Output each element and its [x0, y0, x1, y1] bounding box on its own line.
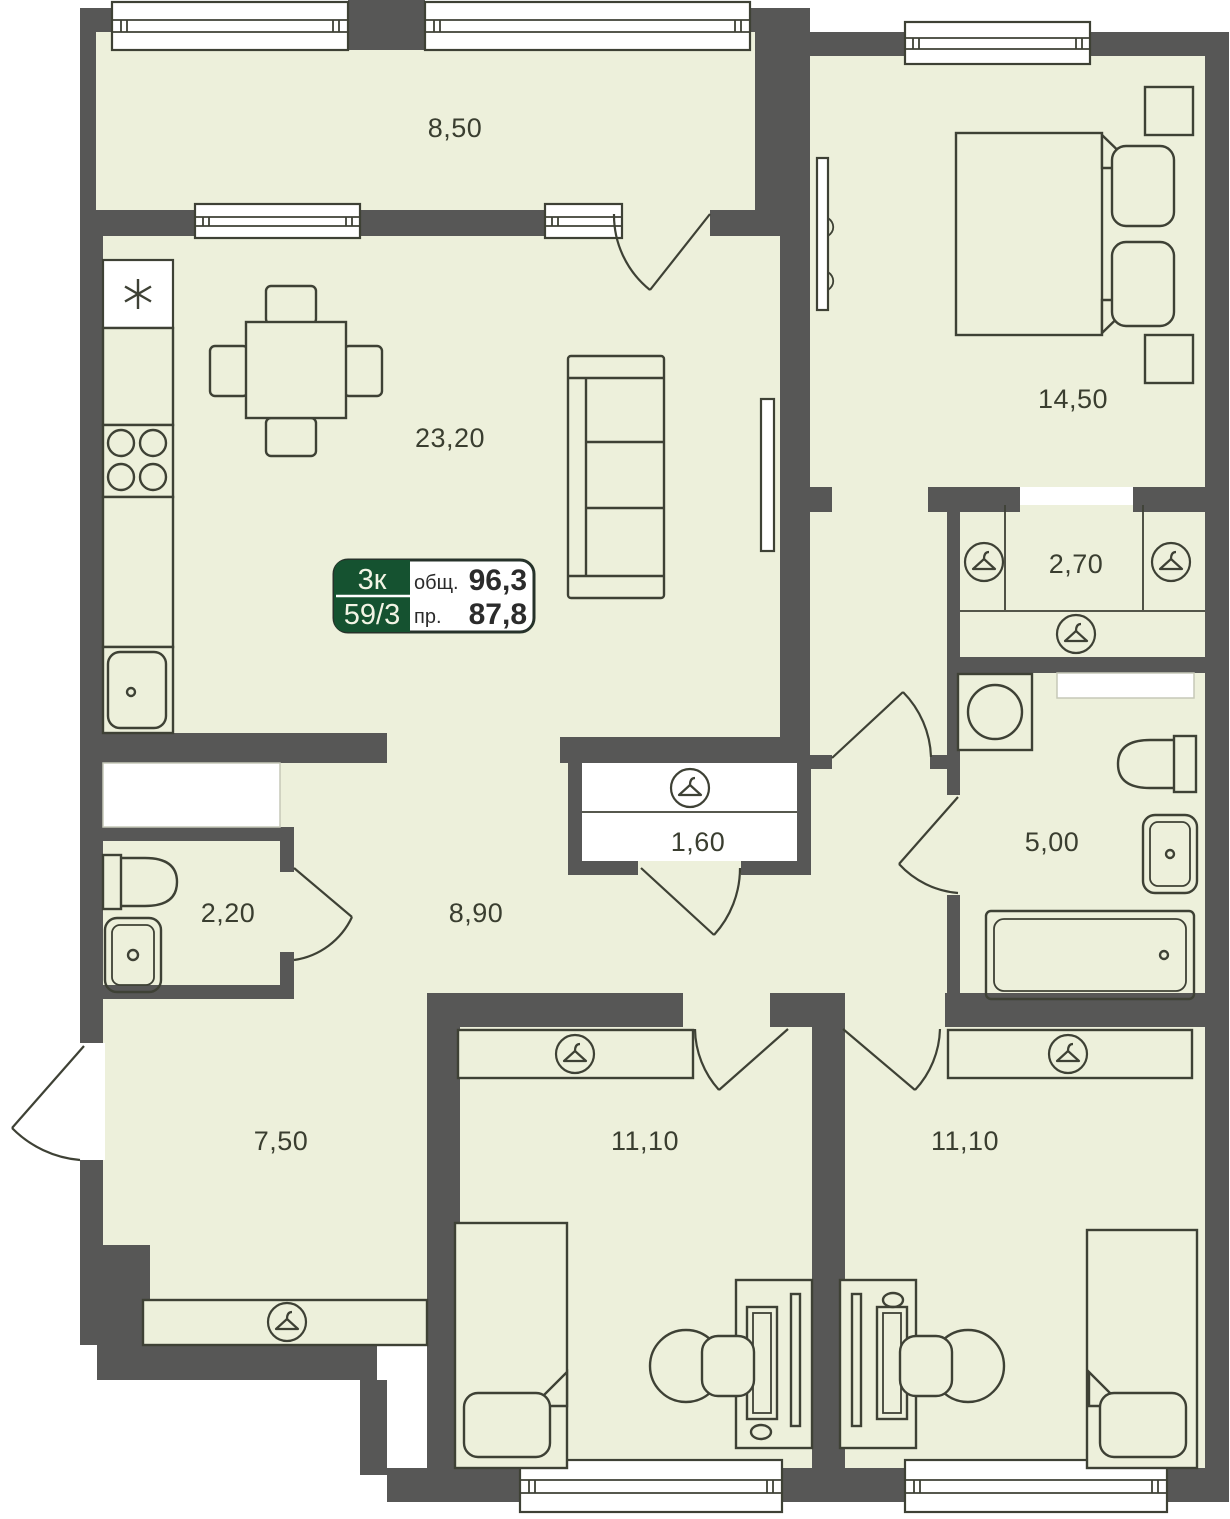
pillow [464, 1393, 550, 1457]
room-label-bathroom: 5,00 [1025, 827, 1080, 857]
room-label-kitchen-living: 23,20 [415, 423, 485, 453]
room-label-bedroom2: 11,10 [931, 1126, 999, 1156]
single-bed [1087, 1230, 1197, 1468]
living-area-label: пр. [414, 606, 442, 628]
pillow [1100, 1393, 1186, 1457]
room-label-bedroom1: 11,10 [611, 1126, 679, 1156]
living-area-value: 87,8 [469, 598, 527, 631]
unit-badge: 3к 59/3 общ. 96,3 пр. 87,8 [334, 560, 534, 632]
total-area-value: 96,3 [469, 564, 527, 597]
washing-machine-icon [958, 674, 1032, 750]
window [545, 204, 622, 238]
chair [344, 346, 382, 396]
pillow [1112, 146, 1174, 226]
entrance-door [12, 1046, 84, 1160]
room-label-entry-hall: 7,50 [254, 1126, 309, 1156]
room-label-balcony: 8,50 [428, 113, 483, 143]
room-label-closet: 1,60 [671, 827, 726, 857]
vent-shaft [1057, 673, 1194, 698]
single-bed [455, 1223, 567, 1468]
unit-number: 59/3 [344, 599, 400, 631]
chair [266, 286, 316, 324]
tv-icon [761, 399, 774, 551]
wardrobe [458, 1030, 693, 1078]
window [425, 2, 750, 50]
window [195, 204, 360, 238]
unit-rooms-count: 3к [358, 564, 387, 596]
pillow [1112, 242, 1174, 326]
chair [210, 346, 248, 396]
room-label-hallway: 8,90 [449, 898, 504, 928]
kitchen-counter [103, 260, 173, 733]
chair [266, 418, 316, 456]
total-area-label: общ. [414, 572, 459, 594]
coat-rack [143, 1300, 427, 1345]
room-label-master-bedroom: 14,50 [1038, 384, 1108, 414]
room-label-wardrobe: 2,70 [1049, 549, 1104, 579]
hall-niche [103, 763, 280, 827]
window [112, 2, 348, 50]
window [905, 22, 1090, 64]
sofa-icon [568, 356, 664, 598]
floor-plan-page: 8,50 23,20 14,50 2,70 1,60 5,00 2,20 8,9… [0, 0, 1230, 1519]
room-label-wc: 2,20 [201, 898, 256, 928]
wardrobe [948, 1030, 1192, 1078]
floor-plan: 8,50 23,20 14,50 2,70 1,60 5,00 2,20 8,9… [0, 0, 1230, 1519]
